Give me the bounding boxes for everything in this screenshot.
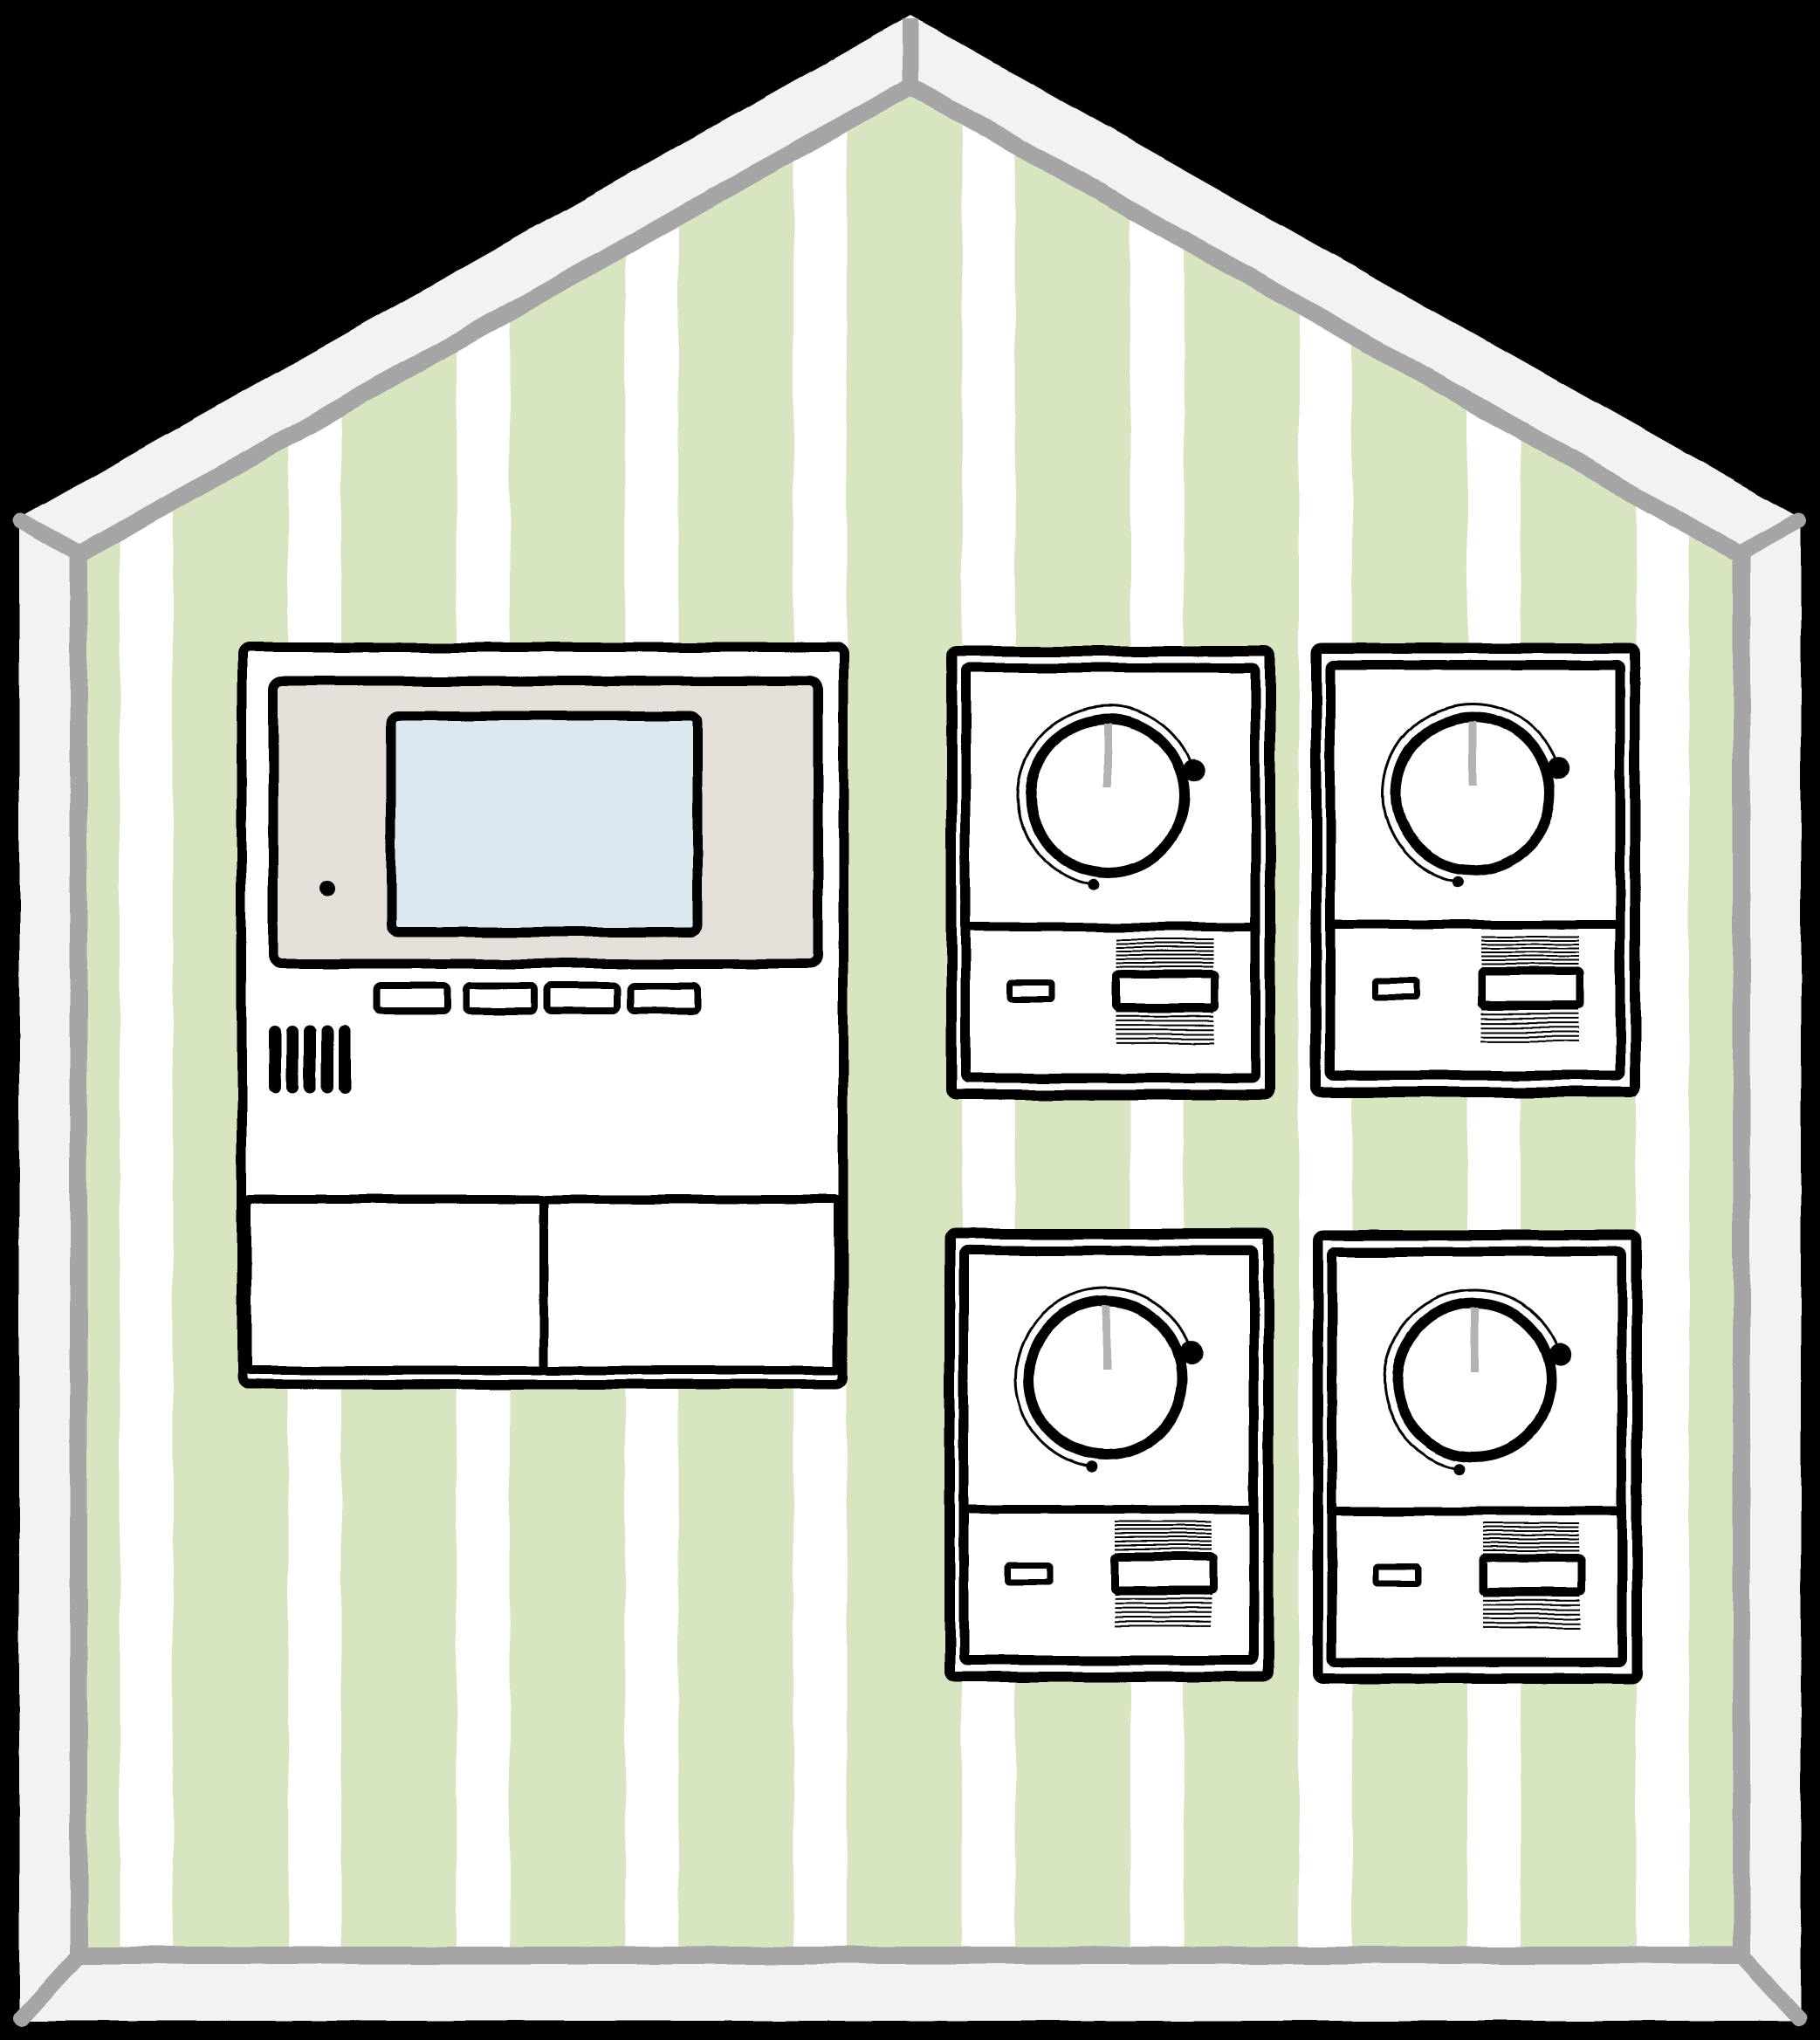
speaker-grille-slit xyxy=(269,1026,281,1093)
monitor-led xyxy=(319,881,335,896)
dial-track-end-dot-small xyxy=(1454,1463,1466,1474)
speaker-slits-upper xyxy=(1483,1523,1580,1555)
monitor-button-4[interactable] xyxy=(630,986,698,1011)
dial-track-end-dot-large xyxy=(1549,1343,1572,1366)
monitor-button-1[interactable] xyxy=(377,986,447,1011)
dial-track-end-dot-large xyxy=(1183,759,1205,782)
door-station-top-right xyxy=(1316,649,1635,1092)
speaker-grille-slit xyxy=(321,1026,333,1093)
nameplate xyxy=(1116,974,1215,1007)
door-station-bottom-left xyxy=(950,1233,1268,1677)
speaker-slits-upper xyxy=(1116,939,1213,971)
call-button[interactable] xyxy=(1010,983,1052,999)
door-station-bottom-right xyxy=(1318,1235,1637,1679)
dial-track-end-dot-small xyxy=(1086,1461,1097,1473)
nameplate xyxy=(1115,1556,1213,1590)
dial-track-end-dot-large xyxy=(1548,757,1570,780)
house-intercom-illustration xyxy=(0,0,1820,2040)
call-button[interactable] xyxy=(1377,1567,1418,1583)
dial-track-end-dot-large xyxy=(1181,1342,1204,1364)
call-button[interactable] xyxy=(1008,1565,1050,1582)
intercom-monitor-panel xyxy=(242,648,843,1384)
speaker-grille-slit xyxy=(339,1026,351,1093)
speaker-slits-upper xyxy=(1115,1521,1212,1553)
call-button[interactable] xyxy=(1375,980,1417,997)
dial-track-end-dot-small xyxy=(1088,879,1099,890)
illustration-canvas xyxy=(0,0,1820,2040)
monitor-screen xyxy=(391,716,697,932)
speaker-slits-upper xyxy=(1481,937,1578,968)
dial-track-end-dot-small xyxy=(1453,876,1464,888)
speaker-grille-slit xyxy=(304,1026,316,1093)
nameplate xyxy=(1483,1558,1582,1591)
monitor-button-3[interactable] xyxy=(547,986,617,1011)
door-station-top-left xyxy=(951,651,1270,1095)
speaker-grille-slit xyxy=(286,1026,299,1093)
monitor-button-2[interactable] xyxy=(466,986,534,1011)
nameplate xyxy=(1481,972,1580,1005)
